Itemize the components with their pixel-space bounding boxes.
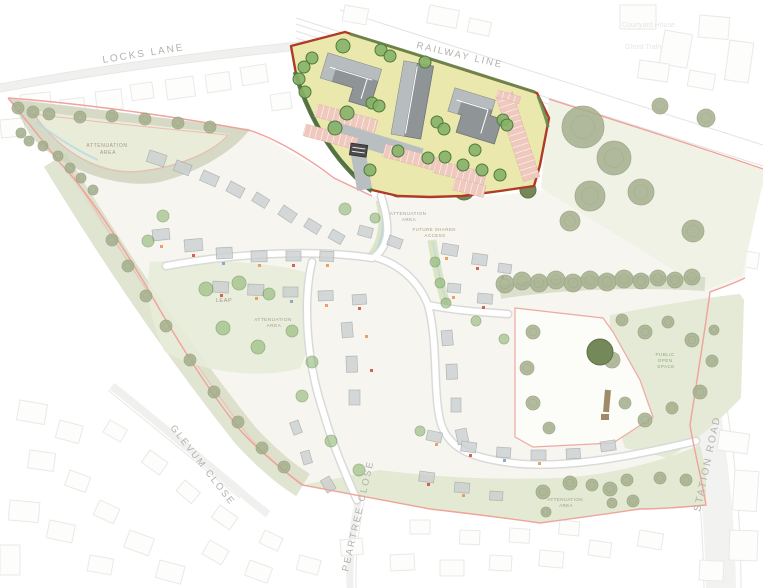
tree-icon <box>157 210 169 222</box>
house-footprint <box>446 364 458 379</box>
olive-tree-icon <box>616 314 628 326</box>
tree-icon <box>457 159 469 171</box>
tree-icon <box>501 119 513 131</box>
masterplan-svg: LOCKS LANE RAILWAY LINE Courtyard House … <box>0 0 763 588</box>
context-building <box>55 420 83 444</box>
olive-tree-icon <box>520 361 534 375</box>
context-building <box>176 480 200 504</box>
tree-icon <box>339 203 351 215</box>
context-building <box>729 530 758 561</box>
context-building <box>46 520 75 543</box>
plot-marker <box>290 300 293 303</box>
house-footprint <box>498 263 512 274</box>
olive-tree-icon <box>603 482 617 496</box>
tree-icon <box>476 164 488 176</box>
context-building <box>130 82 154 101</box>
house-footprint <box>441 243 459 257</box>
context-building <box>155 560 185 584</box>
context-building <box>588 540 612 558</box>
olive-tree-icon <box>709 325 719 335</box>
leap-label: LEAP <box>216 298 232 304</box>
olive-tree-icon <box>543 422 555 434</box>
plot-marker <box>476 267 479 270</box>
olive-tree-icon <box>666 402 678 414</box>
context-building <box>103 420 127 442</box>
plot-marker <box>258 264 261 267</box>
house-footprint <box>471 253 487 266</box>
olive-tree-icon <box>563 476 577 490</box>
house-footprint <box>451 398 461 412</box>
context-building <box>93 500 120 524</box>
olive-tree-icon <box>682 220 704 242</box>
context-building <box>440 560 464 576</box>
olive-tree-icon <box>615 270 633 288</box>
tree-icon <box>325 435 337 447</box>
house-footprint <box>490 491 503 501</box>
tree-icon <box>392 145 404 157</box>
context-building <box>27 450 55 471</box>
tree-icon <box>199 282 213 296</box>
context-building <box>165 76 196 100</box>
olive-tree-icon <box>633 273 649 289</box>
olive-tree-icon <box>541 507 551 517</box>
context-building <box>410 520 430 534</box>
context-building <box>390 554 415 571</box>
house-footprint <box>531 450 546 460</box>
masterplan-canvas: LOCKS LANE RAILWAY LINE Courtyard House … <box>0 0 763 588</box>
tree-icon <box>499 334 509 344</box>
tree-icon <box>293 73 305 85</box>
plot-marker <box>160 245 163 248</box>
olive-tree-icon <box>74 111 86 123</box>
context-building <box>259 530 283 551</box>
house-footprint <box>349 390 360 405</box>
olive-tree-icon <box>184 354 196 366</box>
context-building <box>724 40 753 83</box>
olive-tree-icon <box>581 271 599 289</box>
plot-marker <box>365 335 368 338</box>
tree-icon <box>438 123 450 135</box>
plot-marker <box>435 443 438 446</box>
tree-icon <box>384 50 396 62</box>
olive-tree-icon <box>160 320 172 332</box>
olive-tree-icon <box>204 121 216 133</box>
olive-tree-icon <box>139 113 151 125</box>
house-footprint <box>251 251 267 262</box>
olive-tree-icon <box>106 110 118 122</box>
olive-tree-icon <box>547 271 565 289</box>
olive-tree-icon <box>598 273 616 291</box>
olive-tree-icon <box>667 272 683 288</box>
house-footprint <box>496 447 511 458</box>
house-footprint <box>447 283 461 293</box>
tree-icon <box>306 356 318 368</box>
olive-tree-icon <box>685 333 699 347</box>
house-footprint <box>477 293 493 304</box>
olive-tree-icon <box>43 108 55 120</box>
public-open-space-label: PUBLIC OPEN SPACE <box>655 352 676 369</box>
olive-tree-icon <box>88 185 98 195</box>
context-building <box>240 64 268 86</box>
olive-tree-icon <box>76 173 86 183</box>
substation <box>349 143 368 157</box>
olive-tree-icon <box>27 106 39 118</box>
tree-icon <box>419 56 431 68</box>
house-footprint <box>346 356 358 372</box>
plot-marker <box>325 304 328 307</box>
olive-tree-icon <box>65 163 75 173</box>
house-footprint <box>461 441 477 453</box>
plot-marker <box>370 369 373 372</box>
context-building <box>65 470 91 493</box>
context-building <box>717 430 749 454</box>
context-building <box>0 545 20 575</box>
olive-tree-icon <box>586 479 598 491</box>
context-building <box>270 92 292 111</box>
house-footprint <box>212 281 229 293</box>
olive-tree-icon <box>256 442 268 454</box>
olive-tree-icon <box>106 234 118 246</box>
plot-marker <box>222 262 225 265</box>
tree-icon <box>415 426 425 436</box>
tree-icon <box>336 39 350 53</box>
house-footprint <box>248 284 264 296</box>
context-building <box>489 555 512 571</box>
house-footprint <box>216 247 233 259</box>
context-building <box>205 72 231 93</box>
context-building <box>659 30 692 68</box>
context-building <box>637 530 663 550</box>
context-building <box>342 5 368 25</box>
house-footprint <box>152 228 170 241</box>
house-footprint <box>184 238 203 252</box>
dark-tree-icon <box>587 339 613 365</box>
house-footprint <box>286 251 301 261</box>
tree-icon <box>422 152 434 164</box>
tree-icon <box>251 340 265 354</box>
olive-tree-icon <box>650 270 666 286</box>
house-footprint <box>566 448 581 459</box>
plot-marker <box>292 264 295 267</box>
context-building <box>427 5 460 28</box>
olive-tree-icon <box>680 474 692 486</box>
house-footprint <box>352 294 367 305</box>
house-footprint <box>600 440 616 452</box>
context-building <box>467 18 491 36</box>
plot-marker <box>482 306 485 309</box>
house-footprint <box>318 290 333 301</box>
house-footprint <box>441 330 453 346</box>
tree-icon <box>298 61 310 73</box>
house-footprint <box>283 287 298 297</box>
plot-marker <box>427 483 430 486</box>
house-footprint <box>419 471 435 483</box>
olive-tree-icon <box>24 136 34 146</box>
tree-icon <box>430 257 440 267</box>
context-building <box>559 520 580 536</box>
olive-tree-icon <box>697 109 715 127</box>
tree-icon <box>364 164 376 176</box>
tree-icon <box>441 298 451 308</box>
olive-tree-icon <box>208 386 220 398</box>
olive-tree-icon <box>654 472 666 484</box>
tree-icon <box>263 288 275 300</box>
plot-marker <box>469 454 472 457</box>
olive-tree-icon <box>530 274 548 292</box>
house-footprint <box>454 482 470 493</box>
context-building <box>732 470 759 512</box>
house-footprint <box>341 322 353 338</box>
tree-icon <box>216 321 230 335</box>
context-building <box>211 505 238 530</box>
olive-tree-icon <box>652 98 668 114</box>
olive-tree-icon <box>38 141 48 151</box>
plot-marker <box>462 494 465 497</box>
tree-icon <box>286 325 298 337</box>
context-building <box>698 15 730 40</box>
context-building <box>539 550 564 568</box>
tree-icon <box>299 86 311 98</box>
tree-icon <box>471 316 481 326</box>
tree-icon <box>373 100 385 112</box>
tree-icon <box>328 121 342 135</box>
olive-tree-icon <box>693 385 707 399</box>
tree-icon <box>469 144 481 156</box>
olive-tree-icon <box>638 413 652 427</box>
context-building <box>17 400 48 425</box>
olive-tree-icon <box>12 102 24 114</box>
olive-tree-icon <box>607 498 617 508</box>
tree-icon <box>296 390 308 402</box>
context-building <box>202 540 229 565</box>
olive-tree-icon <box>232 416 244 428</box>
tree-icon <box>340 106 354 120</box>
olive-tree-icon <box>172 117 184 129</box>
tree-icon <box>370 213 380 223</box>
olive-tree-icon <box>278 461 290 473</box>
plot-marker <box>503 459 506 462</box>
context-building <box>687 70 715 90</box>
plot-marker <box>326 264 329 267</box>
olive-tree-icon <box>597 141 631 175</box>
olive-tree-icon <box>496 275 514 293</box>
olive-tree-icon <box>575 181 605 211</box>
olive-tree-icon <box>16 128 26 138</box>
context-building <box>245 560 273 583</box>
context-building <box>509 528 530 543</box>
context-building <box>87 555 113 575</box>
olive-tree-icon <box>662 316 674 328</box>
olive-tree-icon <box>526 325 540 339</box>
plot-marker <box>445 257 448 260</box>
ghost-train-label: Ghost Train <box>625 44 661 51</box>
context-building <box>124 530 155 556</box>
plot-marker <box>358 307 361 310</box>
tree-icon <box>435 278 445 288</box>
olive-tree-icon <box>560 211 580 231</box>
context-building <box>296 555 321 575</box>
plot-marker <box>220 294 223 297</box>
plot-marker <box>452 296 455 299</box>
context-building <box>8 500 40 523</box>
tree-icon <box>232 276 246 290</box>
olive-tree-icon <box>122 260 134 272</box>
olive-tree-icon <box>140 290 152 302</box>
olive-tree-icon <box>564 274 582 292</box>
plot-marker <box>255 297 258 300</box>
olive-tree-icon <box>562 106 604 148</box>
olive-tree-icon <box>526 396 540 410</box>
olive-tree-icon <box>706 355 718 367</box>
house-footprint <box>320 251 334 261</box>
tree-icon <box>142 235 154 247</box>
context-building <box>699 560 724 581</box>
courtyard-house-label: Courtyard House <box>622 22 675 29</box>
plot-marker <box>538 462 541 465</box>
plot-marker <box>192 254 195 257</box>
context-building <box>460 530 480 545</box>
tree-icon <box>439 151 451 163</box>
olive-tree-icon <box>638 325 652 339</box>
olive-tree-icon <box>513 272 531 290</box>
tree-icon <box>494 169 506 181</box>
olive-tree-icon <box>684 269 700 285</box>
olive-tree-icon <box>628 179 654 205</box>
pond-marker <box>601 414 609 420</box>
olive-tree-icon <box>627 495 639 507</box>
glevum-close-label: GLEVUM CLOSE <box>168 423 238 508</box>
olive-tree-icon <box>53 151 63 161</box>
context-building <box>637 60 669 82</box>
context-building <box>141 450 168 475</box>
olive-tree-icon <box>619 397 631 409</box>
olive-tree-icon <box>621 474 633 486</box>
